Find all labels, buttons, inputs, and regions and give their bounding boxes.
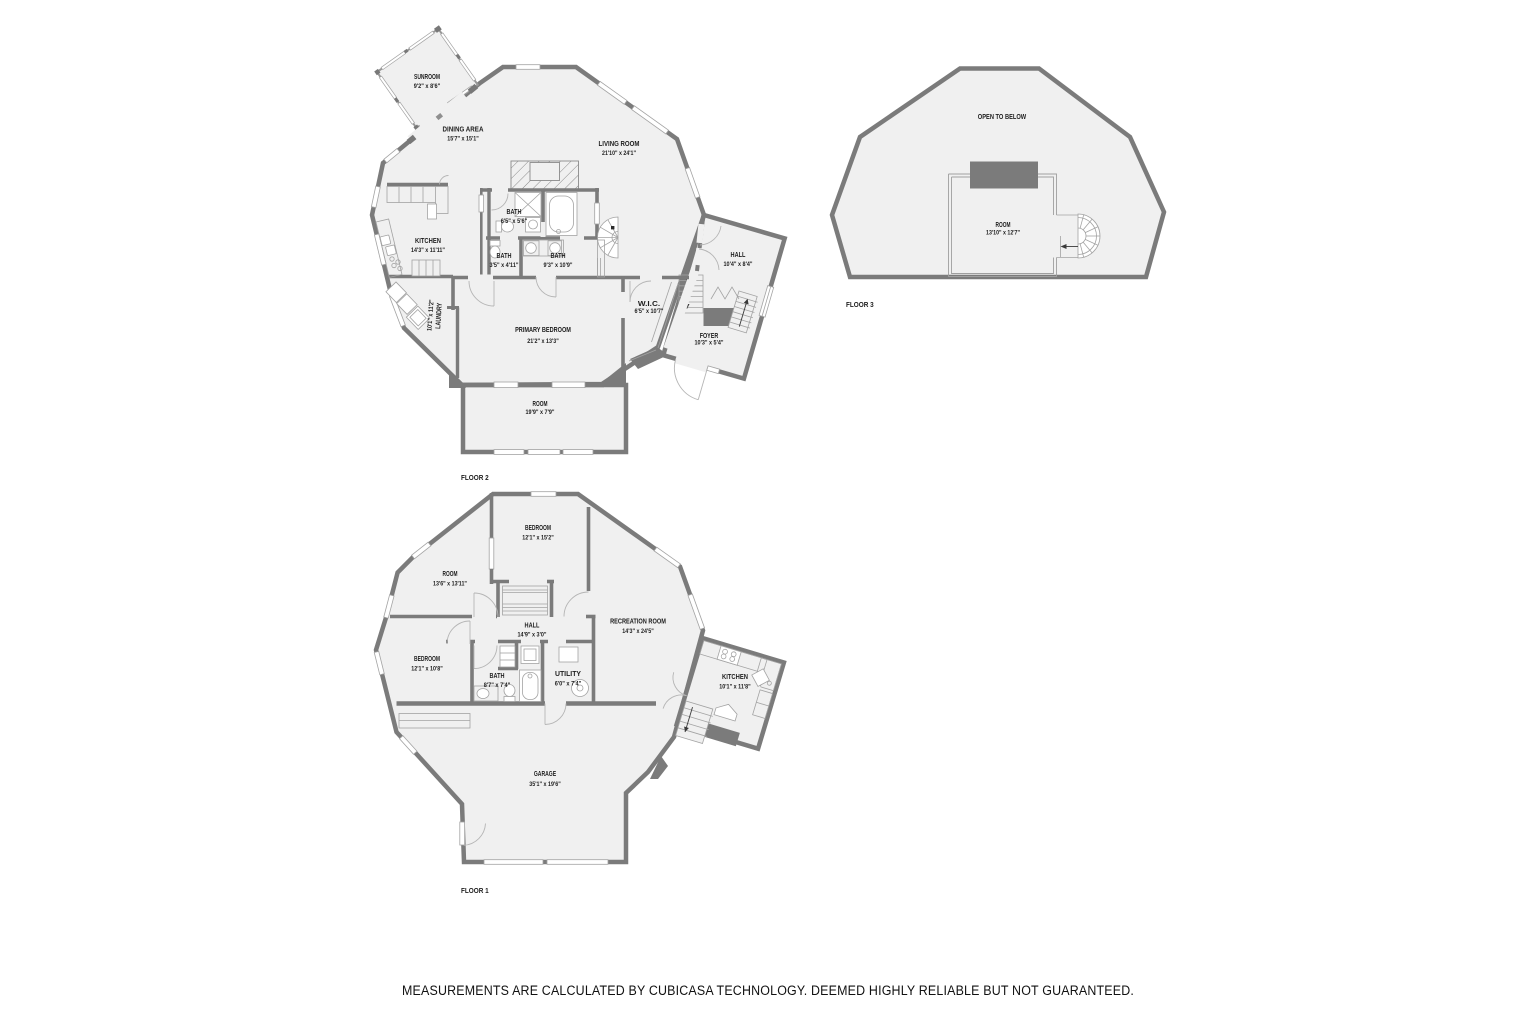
svg-text:BEDROOM: BEDROOM — [414, 654, 440, 663]
svg-text:14'3" x 11'11": 14'3" x 11'11" — [411, 247, 445, 254]
svg-text:PRIMARY BEDROOM: PRIMARY BEDROOM — [515, 325, 571, 334]
svg-text:ROOM: ROOM — [533, 399, 548, 408]
svg-text:KITCHEN: KITCHEN — [722, 672, 748, 681]
svg-text:8'7" x 7'4": 8'7" x 7'4" — [484, 682, 511, 689]
svg-text:21'2" x 13'3": 21'2" x 13'3" — [527, 338, 559, 345]
svg-text:OPEN TO BELOW: OPEN TO BELOW — [978, 112, 1027, 121]
svg-text:12'1" x 15'2": 12'1" x 15'2" — [522, 535, 554, 542]
svg-text:BATH: BATH — [551, 251, 566, 260]
svg-text:FLOOR 2: FLOOR 2 — [461, 473, 489, 482]
svg-text:W.I.C.: W.I.C. — [638, 299, 660, 308]
svg-text:BATH: BATH — [497, 251, 512, 260]
svg-text:35'1" x 19'6": 35'1" x 19'6" — [529, 781, 561, 788]
svg-text:6'5" x 10'7": 6'5" x 10'7" — [635, 308, 664, 315]
svg-text:GARAGE: GARAGE — [534, 769, 556, 778]
svg-text:19'9" x 7'9": 19'9" x 7'9" — [526, 409, 555, 416]
svg-text:10'1" x 11'8": 10'1" x 11'8" — [719, 684, 751, 691]
svg-text:14'3" x 24'5": 14'3" x 24'5" — [622, 628, 654, 635]
svg-text:9'3" x 10'9": 9'3" x 10'9" — [544, 262, 573, 269]
svg-text:6'0" x 7'4": 6'0" x 7'4" — [555, 681, 582, 688]
svg-text:RECREATION ROOM: RECREATION ROOM — [610, 617, 666, 626]
svg-text:HALL: HALL — [525, 621, 540, 630]
svg-text:ROOM: ROOM — [996, 220, 1011, 229]
svg-text:BATH: BATH — [490, 671, 505, 680]
svg-text:21'10" x 24'1": 21'10" x 24'1" — [602, 150, 636, 157]
svg-text:BEDROOM: BEDROOM — [525, 523, 551, 532]
svg-text:10'3" x 5'4": 10'3" x 5'4" — [695, 340, 724, 347]
svg-text:9'2" x 8'6": 9'2" x 8'6" — [414, 83, 441, 90]
svg-text:6'5" x 5'6": 6'5" x 5'6" — [501, 218, 528, 225]
svg-text:13'6" x 13'11": 13'6" x 13'11" — [433, 581, 467, 588]
svg-text:HALL: HALL — [731, 250, 746, 259]
svg-text:14'9" x 3'0": 14'9" x 3'0" — [518, 632, 547, 639]
svg-text:3'5" x 4'11": 3'5" x 4'11" — [490, 262, 519, 269]
svg-text:ROOM: ROOM — [443, 569, 458, 578]
svg-text:12'1" x 10'8": 12'1" x 10'8" — [411, 666, 443, 673]
svg-text:UTILITY: UTILITY — [555, 669, 581, 678]
svg-text:FLOOR 1: FLOOR 1 — [461, 886, 489, 895]
svg-text:KITCHEN: KITCHEN — [415, 236, 441, 245]
svg-text:LIVING ROOM: LIVING ROOM — [599, 139, 640, 148]
svg-text:13'10" x 12'7": 13'10" x 12'7" — [986, 230, 1020, 237]
svg-text:DINING AREA: DINING AREA — [443, 125, 484, 134]
svg-text:10'4" x 8'4": 10'4" x 8'4" — [724, 261, 753, 268]
svg-text:BATH: BATH — [507, 207, 522, 216]
svg-text:SUNROOM: SUNROOM — [414, 72, 440, 81]
svg-text:15'7" x 15'1": 15'7" x 15'1" — [447, 136, 479, 143]
svg-text:MEASUREMENTS ARE CALCULATED BY: MEASUREMENTS ARE CALCULATED BY CUBICASA … — [402, 983, 1134, 998]
svg-text:FLOOR 3: FLOOR 3 — [846, 300, 874, 309]
